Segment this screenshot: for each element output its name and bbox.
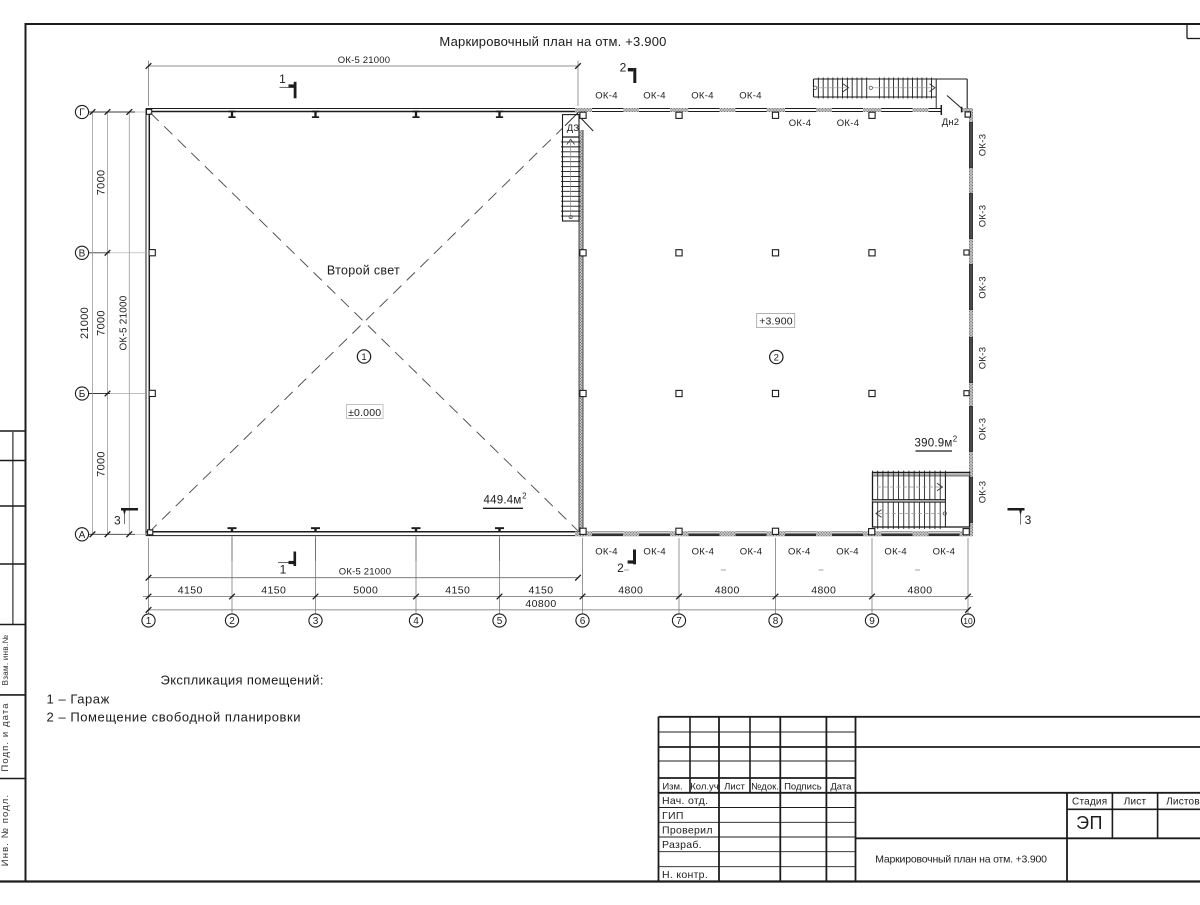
svg-text:ОК-5 21000: ОК-5 21000 — [119, 295, 130, 350]
svg-text:ОК-3: ОК-3 — [978, 347, 989, 370]
svg-text:ДЗ: ДЗ — [567, 123, 580, 134]
svg-text:2 – Помещение свободной планир: 2 – Помещение свободной планировки — [47, 710, 302, 725]
svg-text:Маркировочный план на отм. +3.: Маркировочный план на отм. +3.900 — [439, 34, 666, 49]
svg-text:ОК-3: ОК-3 — [978, 418, 989, 441]
svg-text:А: А — [79, 530, 86, 541]
svg-text:3: 3 — [114, 514, 121, 528]
svg-text:Н. контр.: Н. контр. — [662, 869, 708, 881]
svg-text:Листов: Листов — [1166, 797, 1200, 808]
svg-text:7000: 7000 — [96, 451, 108, 477]
svg-text:ОК-5 21000: ОК-5 21000 — [338, 55, 390, 66]
svg-text:5000: 5000 — [353, 585, 378, 597]
svg-text:3: 3 — [313, 616, 319, 627]
svg-text:Стадия: Стадия — [1072, 797, 1107, 808]
svg-text:4800: 4800 — [811, 585, 836, 597]
svg-text:10: 10 — [963, 616, 973, 626]
svg-text:4150: 4150 — [178, 585, 203, 597]
svg-text:±0.000: ±0.000 — [348, 407, 381, 419]
svg-text:Подп. и дата: Подп. и дата — [0, 702, 11, 771]
svg-text:2: 2 — [522, 492, 527, 501]
svg-text:4150: 4150 — [445, 585, 470, 597]
svg-text:2: 2 — [953, 435, 958, 444]
svg-text:4800: 4800 — [908, 585, 933, 597]
svg-text:ОК-4: ОК-4 — [691, 91, 714, 102]
svg-text:4150: 4150 — [529, 585, 554, 597]
svg-text:Лист: Лист — [724, 782, 745, 793]
svg-text:Маркировочный план на отм. +3.: Маркировочный план на отм. +3.900 — [875, 853, 1047, 865]
svg-text:ОК-4: ОК-4 — [643, 91, 666, 102]
svg-text:9: 9 — [869, 616, 875, 627]
svg-text:2: 2 — [617, 561, 624, 575]
svg-text:8: 8 — [773, 616, 779, 627]
svg-text:4150: 4150 — [261, 585, 286, 597]
svg-text:2: 2 — [229, 616, 235, 627]
svg-text:5: 5 — [497, 616, 503, 627]
svg-text:+3.900: +3.900 — [759, 316, 793, 328]
svg-text:Дн2: Дн2 — [942, 117, 960, 128]
svg-text:ЭП: ЭП — [1076, 813, 1103, 833]
svg-text:ОК-4: ОК-4 — [788, 547, 811, 558]
svg-text:ОК-4: ОК-4 — [595, 547, 618, 558]
svg-text:Взам. инв.№: Взам. инв.№ — [1, 635, 10, 686]
svg-text:6: 6 — [580, 616, 586, 627]
svg-text:1: 1 — [280, 563, 287, 577]
svg-text:40800: 40800 — [525, 598, 556, 610]
svg-text:2: 2 — [774, 353, 779, 364]
svg-text:Экспликация помещений:: Экспликация помещений: — [161, 673, 324, 688]
svg-text:4800: 4800 — [618, 585, 643, 597]
svg-text:Б: Б — [79, 389, 86, 400]
svg-text:Нач. отд.: Нач. отд. — [662, 795, 708, 807]
svg-text:ОК-3: ОК-3 — [978, 134, 989, 157]
svg-text:Кол.уч: Кол.уч — [690, 782, 719, 793]
svg-text:ОК-4: ОК-4 — [836, 547, 859, 558]
svg-text:Дата: Дата — [830, 782, 852, 793]
svg-text:7000: 7000 — [96, 310, 108, 336]
svg-text:ОК-5 21000: ОК-5 21000 — [339, 567, 391, 578]
svg-text:Разраб.: Разраб. — [662, 839, 702, 851]
svg-text:2: 2 — [620, 61, 627, 75]
svg-text:4: 4 — [413, 616, 419, 627]
svg-text:1 – Гараж: 1 – Гараж — [47, 692, 110, 707]
svg-text:1: 1 — [361, 352, 366, 363]
svg-text:ОК-4: ОК-4 — [933, 547, 956, 558]
svg-text:3: 3 — [1025, 513, 1032, 527]
svg-text:Г: Г — [79, 108, 85, 119]
svg-text:Лист: Лист — [1124, 797, 1147, 808]
svg-text:В: В — [79, 248, 86, 259]
svg-text:390.9м: 390.9м — [915, 438, 953, 450]
svg-text:Проверил: Проверил — [662, 825, 713, 837]
svg-text:№док.: №док. — [751, 782, 779, 793]
svg-text:ОК-4: ОК-4 — [837, 118, 860, 129]
svg-text:ОК-4: ОК-4 — [643, 547, 666, 558]
svg-text:ОК-3: ОК-3 — [978, 276, 989, 299]
svg-text:ОК-4: ОК-4 — [789, 118, 812, 129]
svg-text:449.4м: 449.4м — [484, 495, 522, 507]
svg-text:ОК-4: ОК-4 — [884, 547, 907, 558]
svg-text:ОК-4: ОК-4 — [739, 91, 762, 102]
svg-text:ГИП: ГИП — [662, 810, 684, 822]
svg-text:Изм.: Изм. — [662, 782, 682, 793]
svg-text:ОК-3: ОК-3 — [978, 481, 989, 504]
svg-text:ОК-3: ОК-3 — [978, 205, 989, 228]
svg-text:1: 1 — [146, 616, 152, 627]
svg-text:ОК-4: ОК-4 — [740, 547, 763, 558]
svg-text:Подпись: Подпись — [784, 782, 822, 793]
svg-text:Второй свет: Второй свет — [327, 264, 400, 278]
svg-text:7: 7 — [676, 616, 682, 627]
svg-text:ОК-4: ОК-4 — [692, 547, 715, 558]
svg-text:Инв. № подл.: Инв. № подл. — [0, 794, 11, 866]
svg-text:4800: 4800 — [715, 585, 740, 597]
svg-text:ОК-4: ОК-4 — [595, 91, 618, 102]
svg-text:7000: 7000 — [96, 170, 108, 196]
svg-text:1: 1 — [279, 72, 286, 86]
svg-text:21000: 21000 — [79, 307, 91, 339]
